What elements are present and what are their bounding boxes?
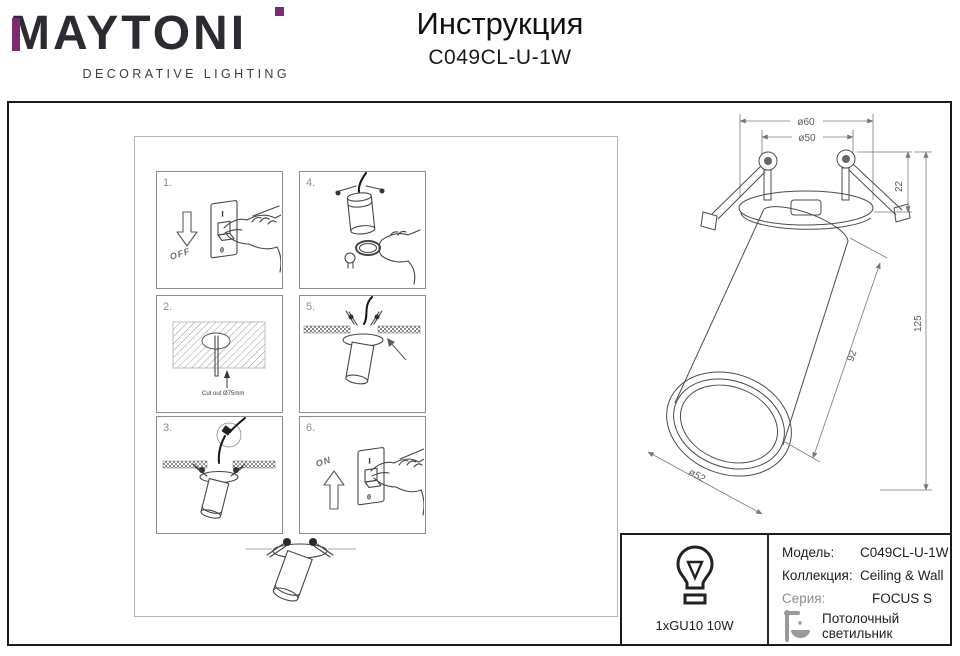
spec-divider [767, 535, 769, 644]
step-6-illustration: 6. ON I 0 [300, 417, 424, 532]
svg-text:Cut out Ø75mm: Cut out Ø75mm [202, 391, 244, 397]
spec-row-series: Серия: FOCUS S [782, 591, 944, 606]
spec-row-collection: Коллекция: Ceiling & Wall [782, 568, 944, 583]
svg-text:5.: 5. [306, 301, 315, 313]
step-panel-6: 6. ON I 0 [299, 416, 426, 534]
dim-inner-diameter: ø50 [798, 133, 816, 144]
model-value: C049CL-U-1W [860, 545, 949, 560]
step-1-illustration: 1. OFF I 0 [157, 172, 281, 287]
step-5-illustration: 5. [300, 296, 424, 411]
model-label: Модель: [782, 545, 860, 560]
bulb-spec: 1xGU10 10W [622, 618, 767, 633]
brand-name: MAYTONI [10, 10, 290, 58]
svg-text:3.: 3. [163, 422, 172, 434]
step-panel-4: 4. [299, 171, 426, 289]
page-title: Инструкция [357, 6, 643, 42]
brand-logo: MAYTONI DECORATIVE LIGHTING [10, 10, 290, 92]
collection-value: Ceiling & Wall [860, 568, 944, 583]
svg-text:0: 0 [220, 245, 224, 255]
step-panel-3: 3. [156, 416, 283, 534]
step-3-illustration: 3. [157, 417, 281, 532]
svg-text:ON: ON [315, 455, 333, 469]
step-panel-5: 5. [299, 295, 426, 413]
spec-row-model: Модель: C049CL-U-1W [782, 545, 944, 560]
series-label: Серия: [782, 591, 860, 606]
dim-outer-diameter: ø60 [797, 117, 815, 128]
svg-text:I: I [368, 456, 371, 465]
svg-text:4.: 4. [306, 177, 315, 189]
model-number: C049CL-U-1W [357, 46, 643, 70]
bulb-cell: 1xGU10 10W [622, 535, 767, 644]
dim-total-height: 125 [913, 315, 924, 332]
technical-drawing: ø60 ø50 22 125 92 ø52 [640, 100, 950, 530]
brand-tagline: DECORATIVE LIGHTING [83, 67, 290, 81]
dim-body-length: 92 [845, 348, 859, 363]
bulb-icon [666, 543, 724, 611]
step-panel-2: 2. Cut out Ø75mm [156, 295, 283, 413]
ceiling-light-icon [782, 610, 812, 642]
logo-i-dot-icon [275, 7, 284, 16]
svg-text:0: 0 [367, 492, 371, 502]
spec-rows: Модель: C049CL-U-1W Коллекция: Ceiling &… [782, 545, 944, 642]
svg-text:6.: 6. [306, 422, 315, 434]
document-header: Инструкция C049CL-U-1W [357, 6, 643, 70]
svg-text:OFF: OFF [169, 246, 192, 262]
svg-text:2.: 2. [163, 301, 172, 313]
step-panel-1: 1. OFF I 0 [156, 171, 283, 289]
logo-accent-bar [12, 18, 20, 51]
spec-row-type: Потолочный светильник [782, 610, 944, 642]
instruction-sheet: 1. OFF I 0 2. [134, 136, 618, 617]
result-illustration [230, 535, 370, 615]
step-2-illustration: 2. Cut out Ø75mm [157, 296, 281, 411]
svg-text:1.: 1. [163, 177, 172, 189]
step-4-illustration: 4. [300, 172, 424, 287]
spec-box: 1xGU10 10W Модель: C049CL-U-1W Коллекция… [620, 533, 952, 646]
collection-label: Коллекция: [782, 568, 860, 583]
svg-text:I: I [221, 209, 224, 218]
series-value: FOCUS S [860, 591, 932, 606]
type-value: Потолочный светильник [822, 611, 944, 641]
dim-recess-height: 22 [894, 180, 905, 192]
